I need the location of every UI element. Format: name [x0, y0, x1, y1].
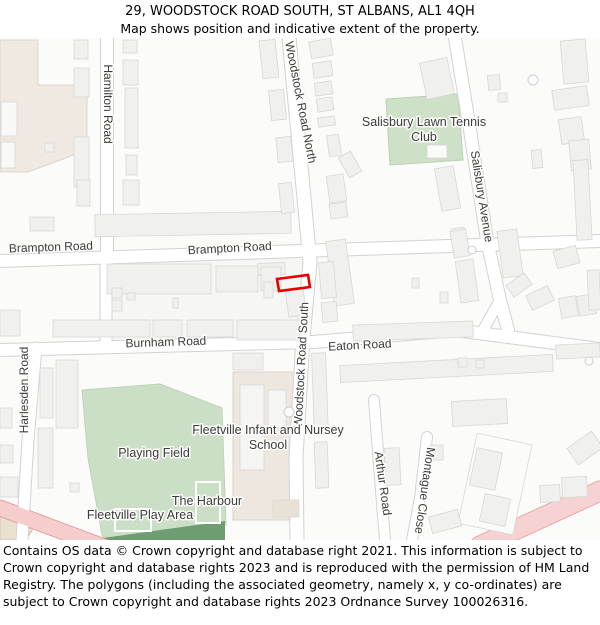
map-label-tennis-club-line2: Club	[411, 130, 437, 144]
building	[95, 211, 291, 236]
building	[540, 484, 561, 502]
building	[112, 288, 122, 298]
tree-circle	[585, 357, 593, 365]
building	[0, 445, 13, 463]
building	[276, 136, 294, 162]
map-label-hamilton-road: Hamilton Road	[101, 64, 115, 143]
building	[278, 182, 294, 213]
map-label-brampton-road-west: Brampton Road	[9, 239, 93, 256]
map-label-burnham-road: Burnham Road	[125, 334, 206, 351]
building	[318, 261, 336, 298]
building	[556, 343, 600, 359]
building	[45, 143, 54, 152]
building	[237, 320, 300, 340]
building	[173, 298, 178, 308]
building	[329, 202, 348, 219]
building	[412, 278, 419, 288]
building	[587, 270, 600, 311]
building	[125, 88, 138, 148]
building	[314, 81, 333, 96]
building	[123, 180, 139, 205]
building	[0, 310, 20, 336]
building	[77, 180, 90, 206]
building	[107, 264, 211, 294]
page-title: 29, WOODSTOCK ROAD SOUTH, ST ALBANS, AL1…	[0, 4, 600, 20]
tree-circle	[468, 246, 476, 254]
building	[427, 145, 447, 158]
building	[1, 102, 17, 136]
building	[458, 358, 467, 367]
building	[531, 150, 543, 169]
building	[558, 296, 578, 319]
building	[126, 155, 137, 175]
map-header: 29, WOODSTOCK ROAD SOUTH, ST ALBANS, AL1…	[0, 0, 600, 38]
building	[479, 494, 510, 527]
building	[327, 134, 342, 156]
building	[314, 442, 329, 488]
building	[312, 61, 333, 78]
building	[317, 116, 335, 127]
map-label-harlesden-road: Harlesden Road	[17, 347, 31, 434]
building	[112, 300, 122, 311]
building	[487, 75, 500, 91]
copyright-text: Contains OS data © Crown copyright and d…	[3, 543, 597, 611]
map-footer: Contains OS data © Crown copyright and d…	[0, 540, 600, 611]
building	[216, 266, 258, 292]
building	[321, 301, 338, 322]
building	[38, 428, 53, 488]
map-label-tennis-club-line1: Salisbury Lawn Tennis	[362, 115, 486, 129]
building	[1, 142, 15, 168]
building	[70, 483, 79, 492]
building	[326, 174, 347, 203]
building	[0, 408, 12, 428]
map-label-playing-field: Playing Field	[118, 446, 190, 460]
building	[560, 39, 589, 84]
building	[56, 360, 78, 428]
building	[561, 476, 587, 497]
building	[268, 89, 286, 120]
map-canvas: Hamilton RoadWoodstock Road NorthWoodsto…	[0, 38, 600, 540]
map-svg: Hamilton RoadWoodstock Road NorthWoodsto…	[0, 38, 600, 540]
building	[498, 93, 507, 102]
building	[123, 60, 138, 85]
map-label-school-line2: School	[249, 438, 287, 452]
tree-circle	[528, 75, 538, 85]
building	[53, 320, 150, 337]
building	[316, 97, 334, 112]
building	[440, 292, 448, 303]
building	[0, 477, 18, 497]
building	[273, 500, 299, 517]
building	[259, 39, 279, 78]
building	[123, 40, 137, 53]
building	[74, 137, 89, 187]
page-subtitle: Map shows position and indicative extent…	[0, 21, 600, 37]
building	[309, 38, 334, 59]
building	[30, 217, 54, 231]
building	[552, 86, 589, 111]
building	[476, 360, 484, 368]
building	[233, 353, 263, 370]
building	[74, 40, 88, 59]
building	[451, 399, 507, 427]
map-label-the-harbour: The Harbour	[172, 494, 242, 508]
building	[264, 282, 273, 298]
building	[40, 368, 53, 418]
map-label-fleetville-play-area: Fleetville Play Area	[87, 508, 193, 522]
building	[127, 293, 135, 300]
map-label-school-line1: Fleetville Infant and Nursey	[192, 423, 344, 437]
building	[74, 68, 89, 97]
